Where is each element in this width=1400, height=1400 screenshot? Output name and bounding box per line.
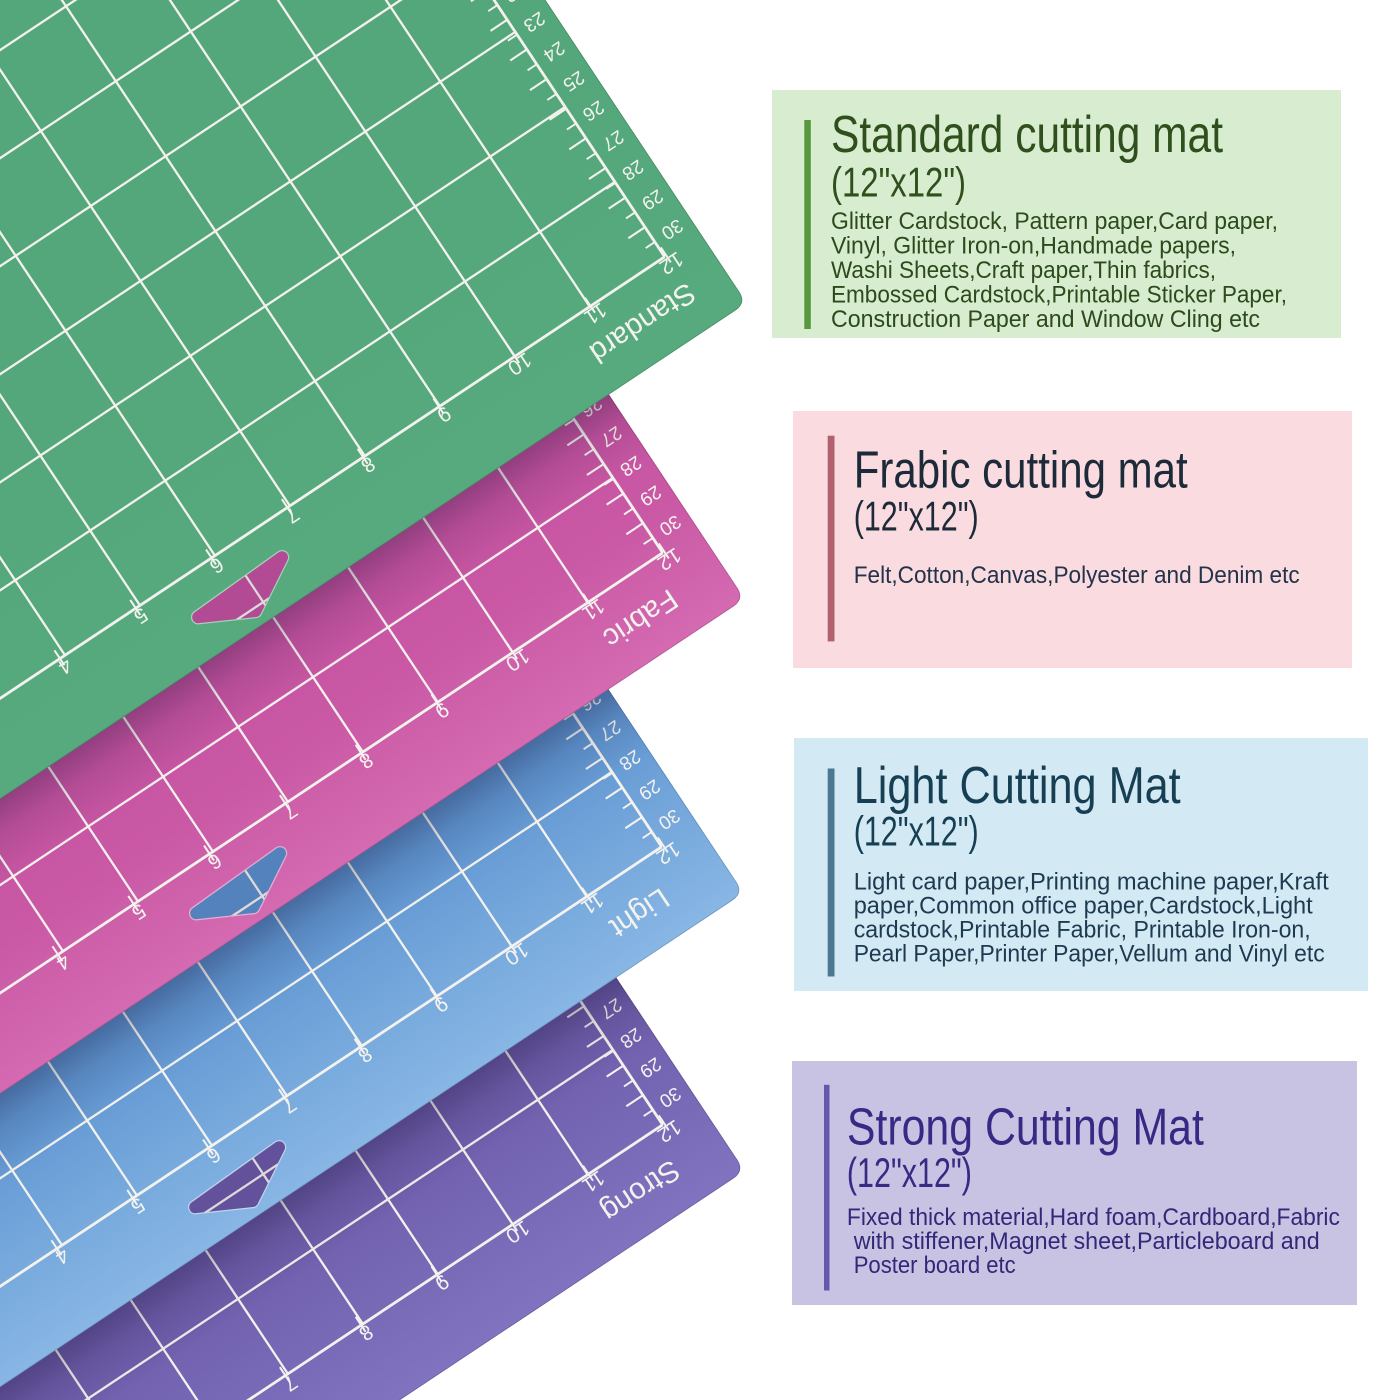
svg-text:(12"x12"): (12"x12") <box>831 159 966 206</box>
svg-text:Strong Cutting Mat: Strong Cutting Mat <box>847 1098 1204 1156</box>
svg-text:paper,Common office paper,Card: paper,Common office paper,Cardstock,Ligh… <box>854 892 1313 919</box>
svg-text:(12"x12"): (12"x12") <box>847 1149 972 1196</box>
svg-text:(12"x12"): (12"x12") <box>854 493 979 540</box>
svg-text:(12"x12"): (12"x12") <box>854 808 979 855</box>
svg-text:Light Cutting Mat: Light Cutting Mat <box>854 757 1181 815</box>
svg-text:Poster board etc: Poster board etc <box>854 1252 1016 1279</box>
svg-text:Glitter Cardstock, Pattern pap: Glitter Cardstock, Pattern paper,Card pa… <box>831 208 1278 235</box>
svg-text:with stiffener,Magnet sheet,Pa: with stiffener,Magnet sheet,Particleboar… <box>853 1228 1320 1255</box>
svg-text:Felt,Cotton,Canvas,Polyester a: Felt,Cotton,Canvas,Polyester and Denim e… <box>854 562 1300 589</box>
svg-text:Embossed Cardstock,Printable S: Embossed Cardstock,Printable Sticker Pap… <box>831 282 1287 309</box>
svg-text:Light card paper,Printing mach: Light card paper,Printing machine paper,… <box>854 868 1329 895</box>
svg-text:Frabic cutting mat: Frabic cutting mat <box>854 441 1188 499</box>
svg-text:Standard cutting mat: Standard cutting mat <box>831 106 1223 164</box>
svg-text:Fixed thick material,Hard foam: Fixed thick material,Hard foam,Cardboard… <box>847 1204 1340 1231</box>
svg-text:Construction Paper and Window: Construction Paper and Window Cling etc <box>831 306 1260 333</box>
svg-text:Vinyl, Glitter Iron-on,Handmad: Vinyl, Glitter Iron-on,Handmade papers, <box>831 233 1236 260</box>
svg-text:cardstock,Printable Fabric, Pr: cardstock,Printable Fabric, Printable Ir… <box>854 916 1311 943</box>
svg-text:Washi Sheets,Craft paper,Thin: Washi Sheets,Craft paper,Thin fabrics, <box>831 257 1216 284</box>
svg-text:Pearl Paper,Printer Paper,Vell: Pearl Paper,Printer Paper,Vellum and Vin… <box>854 940 1325 967</box>
